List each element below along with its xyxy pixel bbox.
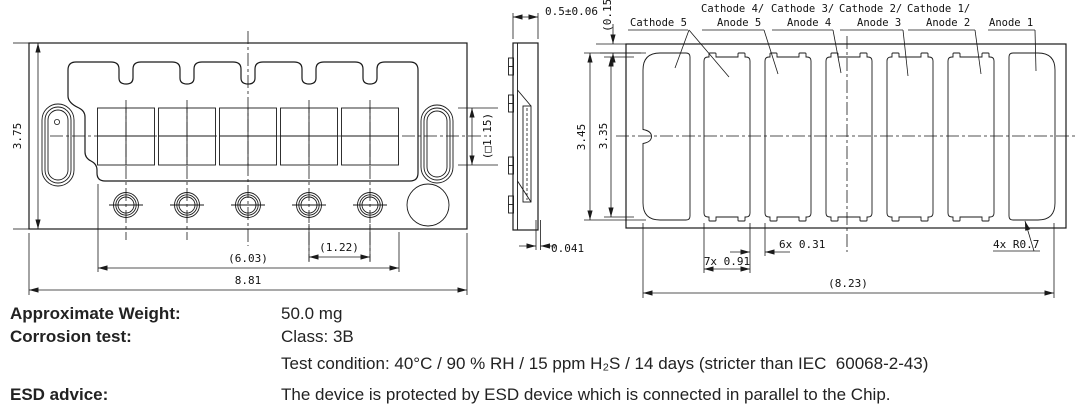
spec-label-weight: Approximate Weight: xyxy=(10,304,181,324)
spec-label-corrosion: Corrosion test: xyxy=(10,327,132,347)
spec-value-esd: The device is protected by ESD device wh… xyxy=(281,385,891,405)
spec-value-test-condition: Test condition: 40°C / 90 % RH / 15 ppm … xyxy=(281,354,928,374)
spec-table: Approximate Weight: 50.0 mg Corrosion te… xyxy=(0,0,1080,406)
datasheet-drawing-page: 3.75 (1.22) (6.03) 8.81 xyxy=(0,0,1080,406)
spec-value-weight: 50.0 mg xyxy=(281,304,342,324)
spec-label-esd: ESD advice: xyxy=(10,385,108,405)
spec-value-corrosion-class: Class: 3B xyxy=(281,327,354,347)
